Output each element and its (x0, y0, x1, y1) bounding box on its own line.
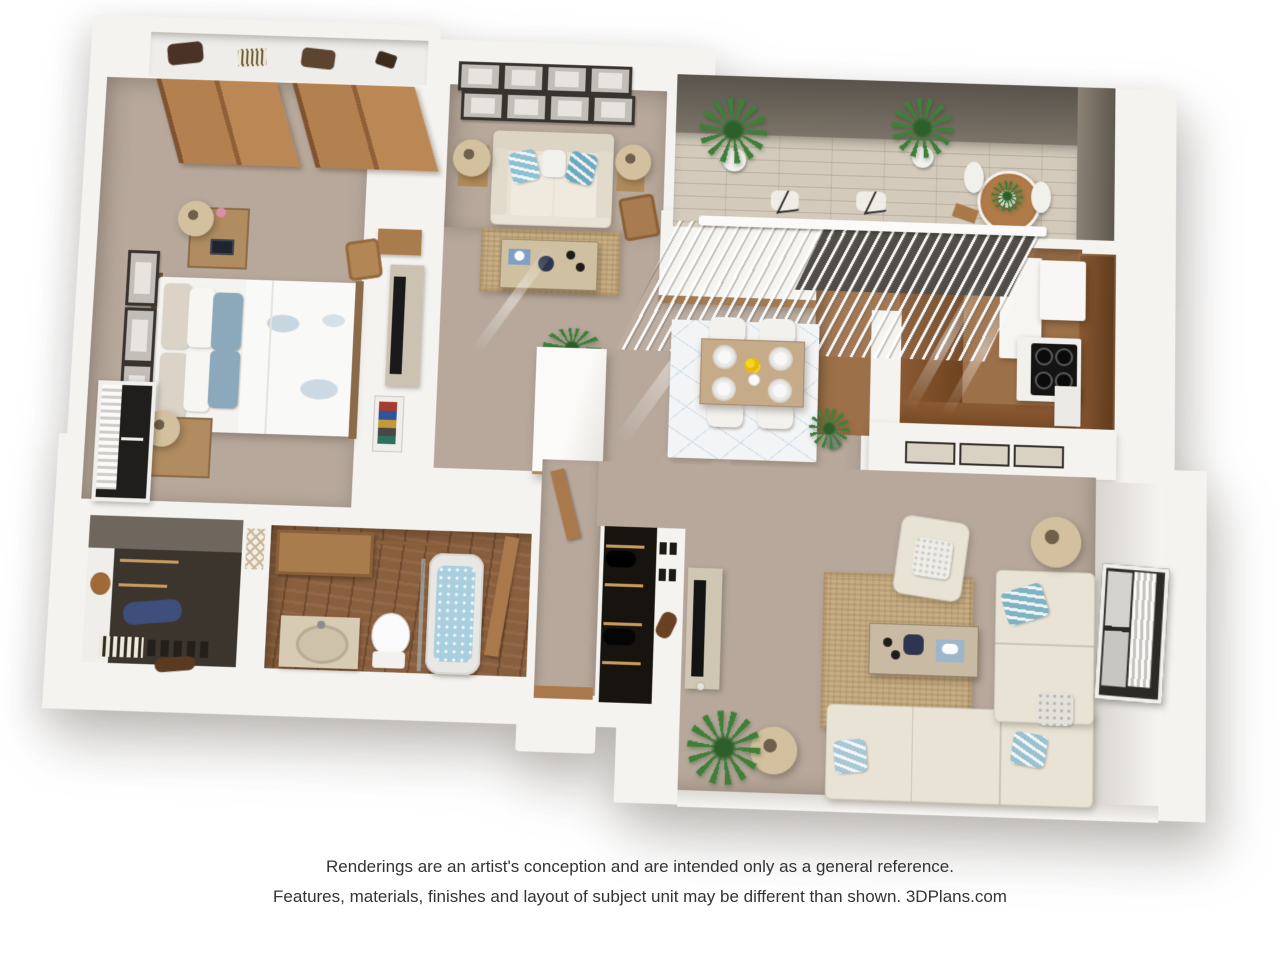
loveseat-arm-right (596, 151, 614, 218)
den-gallery-frame-7 (547, 93, 592, 124)
hanging-garment-2 (603, 628, 636, 646)
den-gallery-frame-8 (591, 95, 635, 126)
loveseat-pillow-white (541, 150, 566, 178)
sofa-pillow-blue-corner (1009, 730, 1048, 769)
den-gallery-frame-5 (461, 90, 506, 121)
dishwasher (1054, 386, 1081, 427)
striped-box-icon (98, 636, 144, 658)
toilet-tank (372, 651, 405, 669)
disclaimer: Renderings are an artist's conception an… (0, 852, 1280, 912)
bed-duvet-leaf-pattern (238, 280, 358, 437)
shoe-pair-2 (659, 569, 680, 582)
balcony-wall-right (1076, 87, 1115, 241)
den-gallery-frame-4 (588, 65, 632, 95)
floor-plan-page: Renderings are an artist's conception an… (0, 0, 1280, 960)
den-wooden-chair (618, 193, 661, 242)
sofa-pillow-blue-left (833, 738, 868, 774)
den-gallery-frame-3 (545, 64, 589, 94)
bedroom-wall-frame-2 (122, 307, 157, 364)
books-icon (377, 402, 397, 445)
loveseat-arm-left (490, 148, 509, 215)
soap-dish-icon (942, 644, 958, 655)
armchair-pillow (911, 536, 954, 580)
sofa-pillow-gray-pattern (1037, 692, 1074, 726)
entry-threshold (534, 685, 593, 699)
bedroom-chair (345, 238, 384, 282)
den-gallery-frame-2 (501, 63, 546, 93)
storage-column (532, 347, 607, 477)
den-gallery-frame-6 (504, 92, 549, 123)
half-wall-vent-1 (905, 441, 956, 465)
satchel-icon (300, 47, 336, 70)
tablet-icon (210, 239, 235, 256)
fridge (1040, 260, 1087, 321)
bedroom-wall-frame-1 (125, 250, 160, 306)
burner-2 (1055, 348, 1073, 367)
bathroom-shelf (275, 529, 374, 577)
den-gallery-frame-1 (458, 61, 503, 91)
clutch-brown-icon (154, 655, 195, 672)
burner-3 (1035, 371, 1053, 390)
blue-garment-icon (123, 599, 183, 626)
living-decor-dot-1 (883, 637, 892, 647)
disclaimer-line-1: Renderings are an artist's conception an… (0, 852, 1280, 882)
burner-1 (1035, 347, 1053, 366)
bedroom-desk (377, 229, 422, 256)
bathtub-water (433, 565, 476, 662)
living-connect-floor (597, 461, 692, 529)
disclaimer-line-2: Features, materials, finishes and layout… (0, 882, 1280, 912)
half-wall-vent-3 (1014, 445, 1065, 469)
closet-sliding-door-right (292, 83, 438, 172)
half-wall-vent-2 (959, 443, 1010, 467)
entry-stoop (515, 718, 596, 754)
hanging-garment-1 (605, 551, 636, 568)
bed-pillow-blue-top (211, 292, 244, 351)
living-floor-lamp-north (1030, 516, 1081, 568)
shoe-pair-1 (659, 542, 680, 555)
closet-sliding-door-left (156, 79, 299, 168)
living-vase-navy-icon (903, 634, 924, 655)
bag-brown-icon (167, 41, 204, 66)
striped-clutch-icon (238, 48, 266, 66)
bed-pillow-blue-bottom (207, 350, 240, 409)
living-decor-dot-2 (891, 650, 900, 660)
shoe-row-icon (147, 640, 213, 659)
apartment-3d-floor-plan (25, 14, 1216, 854)
lattice-panel (245, 528, 265, 569)
